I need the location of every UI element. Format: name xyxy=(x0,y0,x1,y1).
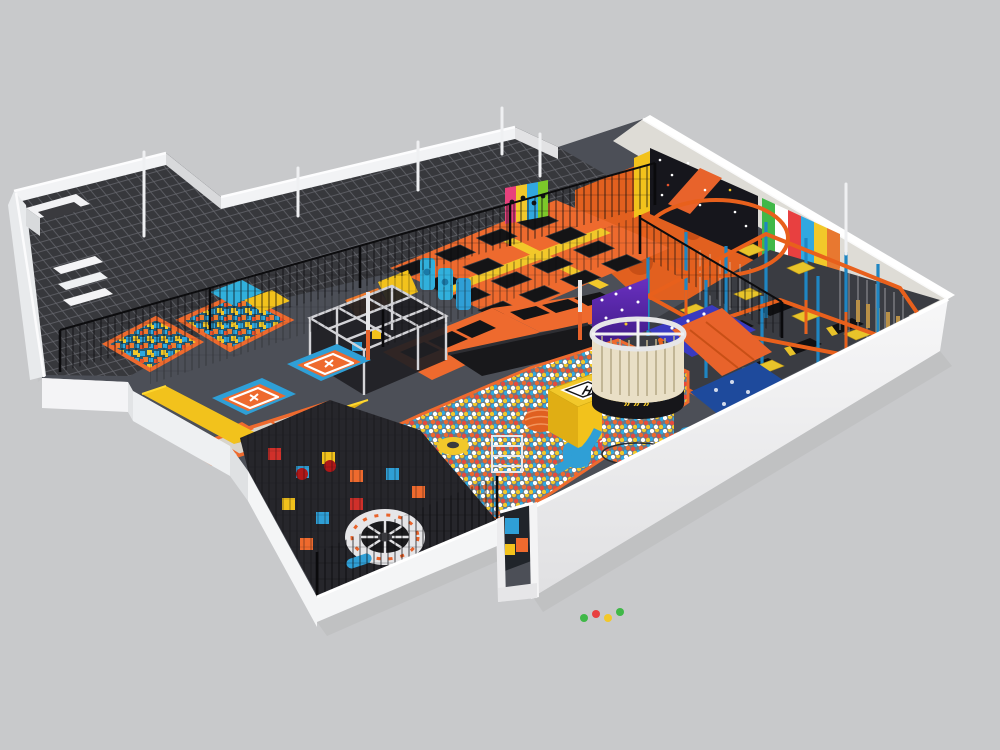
alcove-interior xyxy=(500,502,534,572)
alcove-box xyxy=(516,538,528,552)
isometric-scene: H »»» xyxy=(0,0,1000,750)
playground-render: H »»» xyxy=(0,0,1000,750)
alcove-box xyxy=(505,544,515,555)
yellow-donut xyxy=(437,437,469,455)
entry-alcove xyxy=(496,502,539,602)
alcove-box xyxy=(505,518,519,534)
front-wall-step-top xyxy=(42,378,128,412)
